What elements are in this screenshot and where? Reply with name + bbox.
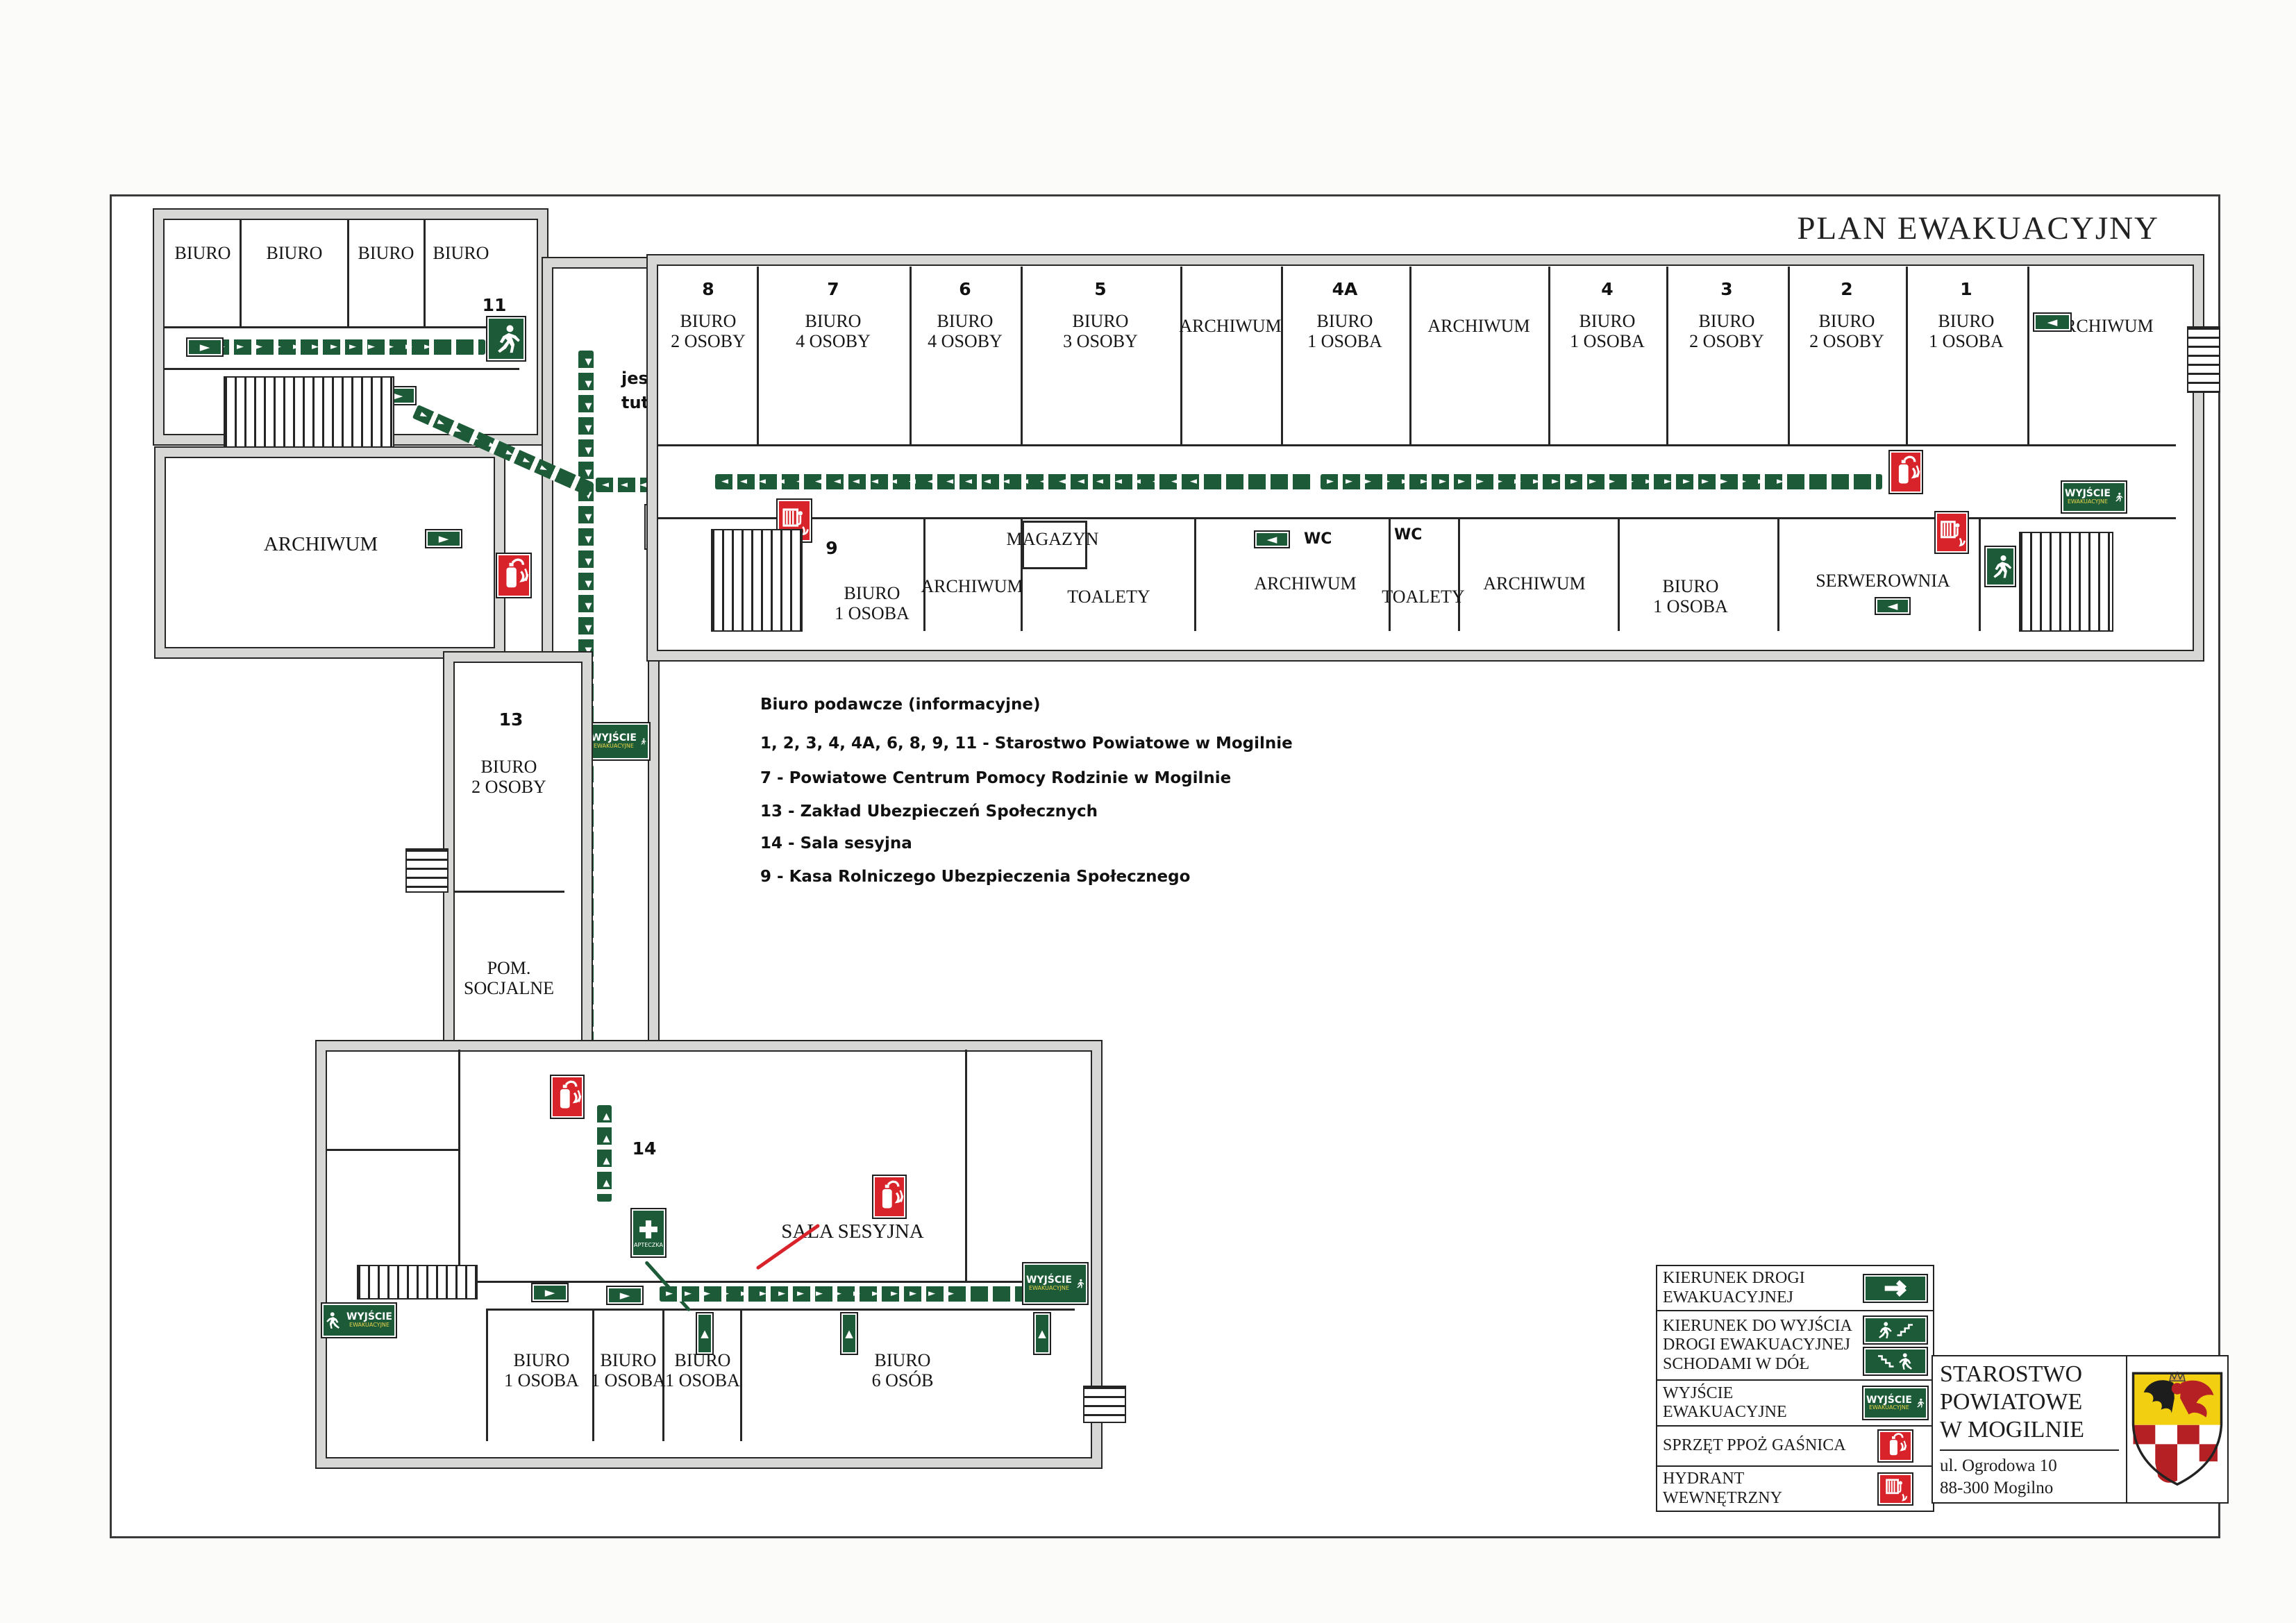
organization-name: STAROSTWO POWIATOWE W MOGILNIE (1940, 1361, 2119, 1444)
legend-row: KIERUNEK DROGI EWAKUACYJNEJ (1657, 1266, 1933, 1311)
wall (486, 1309, 1075, 1311)
info-line: 9 - Kasa Rolniczego Ubezpieczenia Społec… (760, 868, 1190, 886)
room-label-line1: BIURO (471, 757, 546, 777)
room-label-line1: BIURO (591, 1350, 666, 1370)
room-label-line1: MAGAZYN (1007, 529, 1099, 549)
room-label-line2: 2 OSOBY (1809, 331, 1884, 351)
room-number: 5 (1094, 279, 1106, 299)
wall (657, 444, 2176, 446)
room-label-line2: 1 OSOBA (1929, 331, 2004, 351)
exit-sign-text: WYJŚCIE EWAKUACYJNE (1026, 1275, 1072, 1291)
running-man-icon (326, 1310, 344, 1331)
room-label-line1: ARCHIWUM (1483, 573, 1585, 594)
stairs-down-sign (1863, 1347, 1928, 1376)
fire-extinguisher-sign (1877, 1429, 1913, 1463)
staircase (405, 848, 449, 893)
left-arrow-icon: ◄ (1267, 533, 1277, 546)
up-arrow-sign: ▲ (696, 1312, 714, 1355)
wall (164, 326, 519, 328)
room-label: BIURO1 OSOBA (835, 583, 910, 623)
legend-label: SPRZĘT PPOŻ GAŚNICA (1657, 1433, 1858, 1458)
page-title: PLAN EWAKUACYJNY (1701, 210, 2159, 247)
room-label-line1: BIURO (796, 311, 871, 331)
right-arrow-icon: ► (200, 341, 210, 354)
info-line: 1, 2, 3, 4, 4A, 6, 8, 9, 11 - Starostwo … (760, 734, 1293, 752)
exit-sign-text: WYJŚCIE EWAKUACYJNE (2065, 489, 2111, 505)
running-man-icon (2113, 487, 2123, 507)
left-arrow-icon: ◄ (2047, 316, 2058, 329)
emergency-exit-sign: WYJŚCIE EWAKUACYJNE (2061, 480, 2127, 514)
room-label-line1: TOALETY (1382, 587, 1464, 607)
room-label: ARCHIWUM (1179, 316, 1281, 336)
legend-row: WYJŚCIE EWAKUACYJNE WYJŚCIE EWAKUACYJNE (1657, 1381, 1933, 1427)
room-label: BIURO1 OSOBA (1929, 311, 2004, 351)
wall (2027, 267, 2029, 444)
room-number: 4A (1332, 279, 1358, 299)
exit-sign-line2: EWAKUACYJNE (1869, 1405, 1909, 1411)
room-label-line2: 2 OSOBY (471, 777, 546, 797)
room-label: BIURO4 OSOBY (796, 311, 871, 351)
room-label: BIURO (358, 243, 414, 263)
org-address-line1: ul. Ogrodowa 10 (1940, 1455, 2119, 1477)
coat-of-arms-cell (2126, 1356, 2227, 1502)
fire-hydrant-sign (1877, 1472, 1913, 1506)
staircase (711, 529, 803, 632)
room-label-line1: BIURO (928, 311, 1003, 331)
info-line: 7 - Powiatowe Centrum Pomocy Rodzinie w … (760, 769, 1231, 787)
fire-extinguisher-sign (1888, 450, 1923, 494)
room-label: BIURO (267, 243, 323, 263)
legend-label: KIERUNEK DO WYJŚCIA DROGI EWAKUACYJNEJ S… (1657, 1314, 1858, 1377)
running-man-icon (1915, 1393, 1925, 1413)
evacuation-plan-page: PLAN EWAKUACYJNY BIURO BIURO BIURO BIURO… (0, 0, 2296, 1623)
emergency-exit-sign: WYJŚCIE EWAKUACYJNE (587, 722, 651, 761)
evacuation-path: ▲▲▲▲ (597, 1105, 612, 1202)
info-line: 13 - Zakład Ubezpieczeń Społecznych (760, 802, 1098, 821)
wall (740, 1311, 742, 1441)
wall (1618, 519, 1620, 631)
wall (458, 1050, 460, 1283)
wall (910, 267, 912, 444)
running-man-icon (1988, 551, 2013, 582)
direction-arrow-sign: ► (531, 1283, 569, 1302)
room-label-line2: 1 OSOBA (1570, 331, 1645, 351)
extinguisher-icon (874, 1177, 905, 1217)
exit-sign-line2: EWAKUACYJNE (349, 1322, 389, 1328)
wall (486, 1311, 488, 1441)
legend-row: KIERUNEK DO WYJŚCIA DROGI EWAKUACYJNEJ S… (1657, 1311, 1933, 1381)
room-number: 13 (499, 709, 523, 730)
wall (1666, 267, 1668, 444)
org-name-line1: STAROSTWO (1940, 1361, 2119, 1388)
direction-arrow-sign: ► (186, 337, 224, 357)
external-staircase (2187, 326, 2220, 393)
first-aid-sign: APTECZKA (630, 1208, 667, 1258)
exit-sign-text: WYJŚCIE EWAKUACYJNE (1866, 1395, 1912, 1411)
stairs-down-sign (1863, 1315, 1928, 1345)
fire-extinguisher-sign (550, 1075, 585, 1119)
room-number: 4 (1601, 279, 1613, 299)
room-label: BIURO6 OSÓB (872, 1350, 934, 1390)
running-man-icon (639, 731, 646, 752)
exit-sign-text: WYJŚCIE EWAKUACYJNE (591, 733, 637, 749)
direction-arrow-sign (1863, 1274, 1928, 1303)
wc-label: WC (1394, 526, 1422, 544)
wall (1906, 267, 1908, 444)
info-line: 14 - Sala sesyjna (760, 834, 912, 852)
room-label: POM. SOCJALNE (464, 958, 554, 998)
direction-arrow-sign: ◄ (2033, 312, 2072, 332)
room-label: BIURO1 OSOBA (1570, 311, 1645, 351)
room-label: ARCHIWUM (264, 533, 378, 555)
hydrant-icon (1936, 513, 1967, 552)
staircase (224, 376, 394, 451)
staircase (2019, 532, 2113, 632)
exit-man-sign (486, 316, 526, 362)
wall (923, 519, 925, 631)
hydrant-icon (1882, 1474, 1909, 1504)
emergency-exit-sign: WYJŚCIE EWAKUACYJNE (321, 1302, 397, 1338)
legend-icon-cell (1858, 1272, 1933, 1305)
room-label-line1: ARCHIWUM (1427, 316, 1530, 336)
legend-label: WYJŚCIE EWAKUACYJNE (1657, 1381, 1858, 1425)
stairs-down-icon (1895, 1320, 1916, 1340)
wc-label: WC (1304, 530, 1332, 548)
emergency-exit-sign: WYJŚCIE EWAKUACYJNE (1022, 1262, 1089, 1305)
legend-icon-cell (1858, 1427, 1933, 1465)
org-name-line2: POWIATOWE (1940, 1388, 2119, 1416)
room-label-line1: BIURO (1570, 311, 1645, 331)
exit-man-sign (1984, 546, 2016, 587)
room-label-line1: BIURO (872, 1350, 934, 1370)
room-label-line1: BIURO (835, 583, 910, 603)
legend-icon-cell: WYJŚCIE EWAKUACYJNE (1858, 1384, 1933, 1422)
room-label-line1: SERWEROWNIA (1816, 571, 1950, 591)
organization-box: STAROSTWO POWIATOWE W MOGILNIE ul. Ogrod… (1932, 1355, 2229, 1504)
room-number: 9 (826, 538, 837, 558)
legend-icon-cell (1858, 1470, 1933, 1508)
room-label: BIURO1 OSOBA (591, 1350, 666, 1390)
running-man-icon (1075, 1272, 1084, 1295)
exit-sign-line1: WYJŚCIE (346, 1312, 392, 1322)
wall (757, 267, 759, 444)
room-label: BIURO1 OSOBA (1307, 311, 1382, 351)
wall (1548, 267, 1550, 444)
room-label-line1: TOALETY (1067, 587, 1150, 607)
room-label-line2: SOCJALNE (464, 978, 554, 998)
room-label-line1: ARCHIWUM (1179, 316, 1281, 336)
org-address-line2: 88-300 Mogilno (1940, 1477, 2119, 1499)
room-label-line2: 3 OSOBY (1063, 331, 1138, 351)
room-label-line2: 1 OSOBA (591, 1370, 666, 1390)
wall (1389, 519, 1391, 631)
first-aid-cross-icon (637, 1218, 660, 1241)
room-label-line1: BIURO (1653, 576, 1728, 596)
legend-label: HYDRANT WEWNĘTRZNY (1657, 1467, 1858, 1511)
room-label-line1: BIURO (1063, 311, 1138, 331)
wall (424, 219, 426, 326)
room-label-line2: 4 OSOBY (928, 331, 1003, 351)
evacuation-path: ►►►►►►►►►►►► (212, 339, 485, 355)
exit-sign-text: WYJŚCIE EWAKUACYJNE (346, 1312, 392, 1328)
room-label-line1: BIURO (671, 311, 746, 331)
room-label-line1: POM. (464, 958, 554, 978)
organization-address: ul. Ogrodowa 10 88-300 Mogilno (1940, 1449, 2119, 1499)
fire-extinguisher-sign (872, 1175, 907, 1219)
staircase (357, 1265, 478, 1300)
room-label-line2: 4 OSOBY (796, 331, 871, 351)
room-label: MAGAZYN (1007, 529, 1099, 549)
legend-label: KIERUNEK DROGI EWAKUACYJNEJ (1657, 1266, 1858, 1310)
left-arrow-icon: ◄ (1888, 600, 1898, 613)
room-label: ARCHIWUM (921, 576, 1023, 596)
wall (326, 1149, 460, 1151)
room-label-line1: BIURO (504, 1350, 579, 1370)
wall (240, 219, 242, 326)
running-man-icon (1898, 1351, 1916, 1372)
room-label: BIURO1 OSOBA (504, 1350, 579, 1390)
room-label: BIURO (433, 243, 489, 263)
extinguisher-icon (552, 1077, 583, 1117)
room-number: 3 (1720, 279, 1732, 299)
running-man-icon (1875, 1320, 1893, 1340)
room-number: 1 (1960, 279, 1972, 299)
room-label-line2: 1 OSOBA (835, 603, 910, 623)
wall (347, 219, 349, 326)
right-arrow-icon: ► (439, 532, 449, 546)
room-number: 11 (483, 295, 507, 315)
room-number: 6 (959, 279, 971, 299)
room-label: ARCHIWUM (1254, 573, 1356, 594)
running-man-icon (491, 321, 521, 356)
evacuation-path: ◄◄◄◄◄◄◄◄◄◄◄◄◄◄◄◄◄◄◄◄◄◄◄◄◄◄ (715, 474, 1312, 489)
room-label: SALA SESYJNA (781, 1220, 923, 1243)
stairs-down-icon (1875, 1351, 1895, 1372)
exit-sign-line2: EWAKUACYJNE (2068, 499, 2108, 505)
right-arrow-icon: ► (620, 1289, 630, 1302)
mogilno-coat-of-arms (2129, 1368, 2225, 1490)
wall (1194, 519, 1196, 631)
room-label: BIURO2 OSOBY (671, 311, 746, 351)
fire-hydrant-sign (1934, 511, 1969, 554)
room-label: BIURO1 OSOBA (665, 1350, 740, 1390)
bottom-building (317, 1041, 1101, 1468)
up-arrow-sign: ▲ (1033, 1312, 1051, 1355)
room-label-line1: BIURO (1929, 311, 2004, 331)
wall (164, 368, 519, 370)
external-staircase (1083, 1386, 1126, 1423)
room-label-line1: ARCHIWUM (921, 576, 1023, 596)
room-label: BIURO1 OSOBA (1653, 576, 1728, 616)
first-aid-label: APTECZKA (634, 1242, 663, 1248)
room-label-line2: 6 OSÓB (872, 1370, 934, 1390)
wall (1777, 519, 1779, 631)
room-label-line1: BIURO (1689, 311, 1764, 331)
right-arrow-icon (1871, 1277, 1920, 1300)
room-number: 2 (1841, 279, 1852, 299)
wall (1021, 267, 1023, 444)
room-label-line1: BIURO (1809, 311, 1884, 331)
legend-row: SPRZĘT PPOŻ GAŚNICA (1657, 1427, 1933, 1467)
legend: KIERUNEK DROGI EWAKUACYJNEJ KIERUNEK DO … (1656, 1265, 1934, 1512)
extinguisher-icon (1891, 452, 1921, 492)
right-arrow-icon: ► (545, 1286, 555, 1300)
organization-text: STAROSTWO POWIATOWE W MOGILNIE ul. Ogrod… (1933, 1356, 2126, 1502)
room-label: BIURO2 OSOBY (1809, 311, 1884, 351)
exit-sign-line1: WYJŚCIE (591, 733, 637, 743)
wall (1979, 519, 1981, 631)
direction-arrow-sign: ◄ (1875, 597, 1911, 615)
legend-row: HYDRANT WEWNĘTRZNY (1657, 1467, 1933, 1511)
room-label-line2: 1 OSOBA (504, 1370, 579, 1390)
room-label-line2: 1 OSOBA (665, 1370, 740, 1390)
wall (1180, 267, 1182, 444)
up-arrow-icon: ▲ (845, 1327, 853, 1340)
legend-icon-cell (1858, 1313, 1933, 1378)
room-label: ARCHIWUM (1427, 316, 1530, 336)
wall (453, 891, 564, 893)
room-number: 14 (632, 1138, 657, 1159)
fire-extinguisher-sign (496, 553, 532, 598)
room-label: BIURO4 OSOBY (928, 311, 1003, 351)
room-label: BIURO (175, 243, 231, 263)
wall (1458, 519, 1460, 631)
extinguisher-icon (498, 555, 530, 596)
wall (1409, 267, 1411, 444)
direction-arrow-sign: ► (606, 1286, 644, 1305)
room-label-line2: 1 OSOBA (1307, 331, 1382, 351)
room-label: TOALETY (1382, 587, 1464, 607)
emergency-exit-sign: WYJŚCIE EWAKUACYJNE (1862, 1386, 1929, 1420)
room-label: ARCHIWUM (1483, 573, 1585, 594)
room-label-line1: BIURO (1307, 311, 1382, 331)
exit-sign-line1: WYJŚCIE (1866, 1395, 1912, 1406)
exit-sign-line1: WYJŚCIE (1026, 1275, 1072, 1286)
info-line: Biuro podawcze (informacyjne) (760, 696, 1040, 714)
room-label: BIURO2 OSOBY (1689, 311, 1764, 351)
wall (1281, 267, 1283, 444)
room-label: SERWEROWNIA (1816, 571, 1950, 591)
wall (1788, 267, 1790, 444)
room-number: 8 (702, 279, 714, 299)
room-label: BIURO 2 OSOBY (471, 757, 546, 797)
extinguisher-icon (1882, 1431, 1909, 1461)
exit-sign-line2: EWAKUACYJNE (1029, 1286, 1069, 1291)
direction-arrow-sign: ► (425, 529, 462, 548)
up-arrow-icon: ▲ (701, 1327, 709, 1340)
exit-sign-line2: EWAKUACYJNE (594, 743, 634, 749)
room-number: 7 (827, 279, 839, 299)
exit-sign-line1: WYJŚCIE (2065, 489, 2111, 499)
up-arrow-icon: ▲ (1038, 1327, 1046, 1340)
room-label-line2: 2 OSOBY (671, 331, 746, 351)
direction-arrow-sign: ◄ (1254, 530, 1290, 548)
room-label-line2: 2 OSOBY (1689, 331, 1764, 351)
wall (965, 1050, 967, 1283)
org-name-line3: W MOGILNIE (1940, 1416, 2119, 1444)
room-label: TOALETY (1067, 587, 1150, 607)
evacuation-path: ►►►►►►►►►►►►►►►►►►►►►►►►► (1321, 474, 1882, 489)
room-label: BIURO3 OSOBY (1063, 311, 1138, 351)
evacuation-path: ►►►►►►►►►►►►►►►► (660, 1286, 1027, 1302)
up-arrow-sign: ▲ (840, 1312, 858, 1355)
room-label-line2: 1 OSOBA (1653, 596, 1728, 616)
room-label-line1: ARCHIWUM (1254, 573, 1356, 594)
